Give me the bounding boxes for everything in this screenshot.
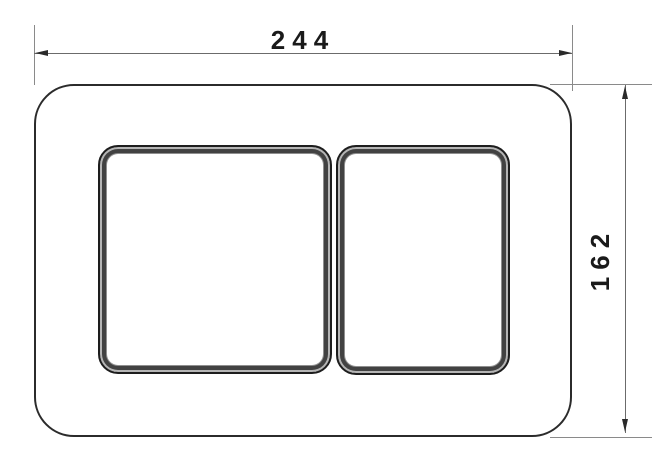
drawing-canvas: 244 162 xyxy=(0,0,658,470)
height-dim-extension-bottom xyxy=(550,437,652,438)
flush-button-small xyxy=(336,145,510,375)
height-dim-line xyxy=(625,85,626,433)
width-dim-extension-right xyxy=(572,25,573,91)
arrowhead-down-icon xyxy=(622,419,628,432)
height-dimension-label: 162 xyxy=(587,219,613,299)
arrowhead-up-icon xyxy=(622,86,628,99)
height-dim-extension-top xyxy=(550,84,652,85)
flush-button-large xyxy=(98,145,332,374)
width-dimension-label: 244 xyxy=(34,27,572,53)
